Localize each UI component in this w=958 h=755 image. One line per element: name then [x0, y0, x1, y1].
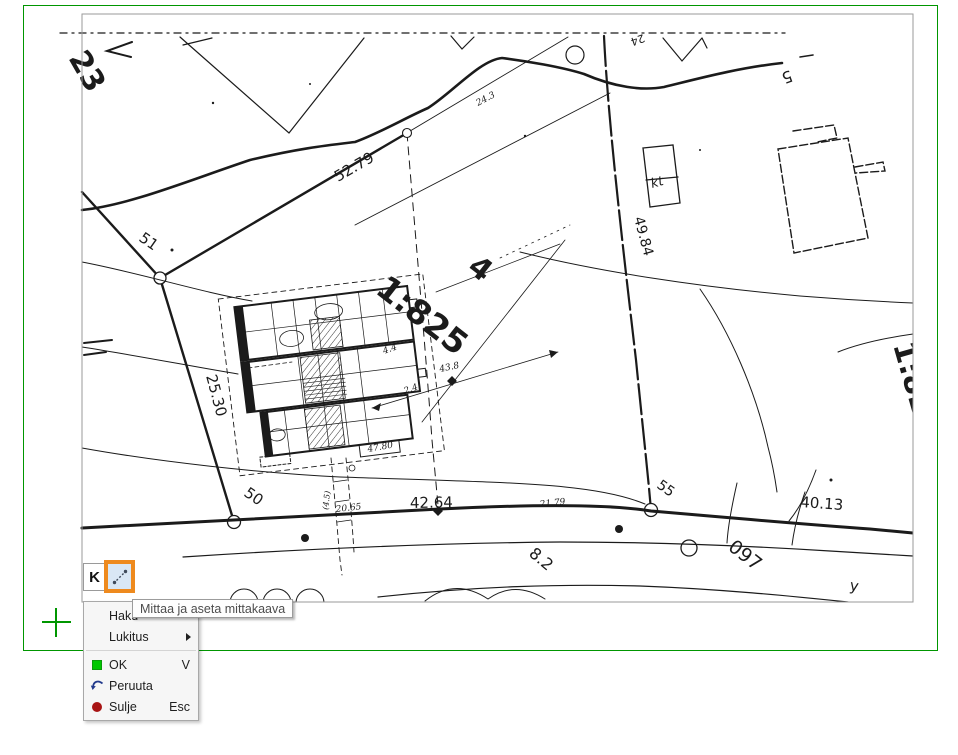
map-label-21-79: 21.79 [538, 497, 566, 510]
map-labels: 23 24.3 24 5 51 52.79 49.84 kt 4 1:825 1… [61, 31, 939, 595]
map-label-24-3: 24.3 [474, 90, 498, 109]
map-label-2-4: 2.4 [402, 382, 420, 397]
k-button[interactable]: K [83, 563, 106, 591]
map-label-5: 5 [779, 66, 795, 87]
menu-item-sulje[interactable]: Sulje Esc [84, 696, 198, 717]
map-label-dist-4264: 42.64 [410, 493, 453, 512]
undo-arrow-icon [84, 680, 109, 692]
menu-item-label: OK [109, 658, 182, 672]
map-label-8-2: 8.2 [525, 544, 557, 575]
close-red-circle-icon [84, 702, 109, 712]
menu-shortcut: Esc [169, 700, 198, 714]
ok-green-square-icon [84, 660, 109, 670]
map-label-block-4: 4 [461, 249, 499, 289]
map-label-parcel-23: 23 [61, 45, 112, 99]
map-label-point-50: 50 [241, 484, 267, 510]
menu-separator [86, 650, 196, 651]
menu-item-label: Lukitus [109, 630, 186, 644]
tooltip: Mittaa ja aseta mittakaava [132, 599, 293, 618]
tooltip-text: Mittaa ja aseta mittakaava [140, 602, 285, 616]
measure-scale-button[interactable] [104, 560, 135, 593]
map-viewport-border [82, 14, 913, 602]
neighbour-house [778, 125, 885, 253]
map-label-43-8: 43.8 [438, 361, 461, 375]
map-dots [171, 83, 833, 542]
menu-item-ok[interactable]: OK V [84, 654, 198, 675]
registration-cross-icon [55, 608, 57, 637]
map-label-dist-4013: 40.13 [800, 493, 844, 514]
map-label-dist-4984: 49.84 [630, 215, 656, 258]
contour-lines [82, 252, 913, 545]
context-menu: Haku Lukitus OK V Peruuta Sulje Esc [83, 601, 199, 721]
menu-item-peruuta[interactable]: Peruuta [84, 675, 198, 696]
map-label-kt: kt [649, 174, 666, 192]
menu-item-label: Peruuta [109, 679, 198, 693]
map-label-dist-5279: 52.79 [331, 148, 377, 185]
measure-icon [110, 567, 130, 587]
map-label-097: 097 [724, 536, 766, 576]
menu-item-lukitus[interactable]: Lukitus [84, 626, 198, 647]
menu-item-label: Sulje [109, 700, 169, 714]
contour-line-thick [82, 58, 782, 210]
road-lines [82, 506, 913, 603]
map-label-point-55: 55 [654, 477, 678, 500]
submenu-arrow-icon [186, 633, 191, 641]
map-label-scale-182: 1:82 [885, 338, 939, 419]
map-label-point-51: 51 [136, 229, 162, 255]
map-label-y: y [848, 576, 860, 595]
map-label-24: 24 [629, 31, 647, 48]
map-label-dist-2530: 25.30 [202, 372, 231, 418]
menu-shortcut: V [182, 658, 198, 672]
map-label-4-5: (4.5) [321, 490, 332, 510]
